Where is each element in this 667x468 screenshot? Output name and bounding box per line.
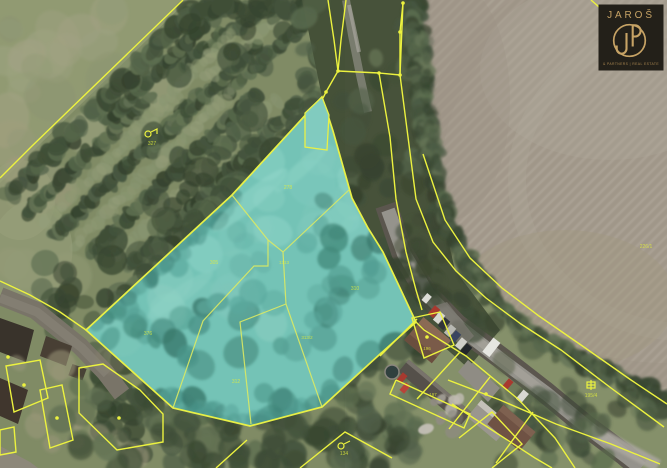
svg-text:& PARTNERS | REAL ESTATE: & PARTNERS | REAL ESTATE (603, 62, 659, 66)
svg-text:196: 196 (423, 346, 431, 351)
svg-text:278: 278 (284, 185, 293, 191)
svg-text:312: 312 (232, 379, 241, 385)
svg-text:313/2: 313/2 (301, 335, 313, 340)
svg-text:305: 305 (210, 260, 219, 266)
svg-text:310: 310 (351, 286, 360, 292)
svg-text:1313: 1313 (279, 260, 290, 265)
svg-text:134: 134 (340, 451, 349, 457)
svg-text:376: 376 (144, 331, 153, 337)
svg-text:195/4: 195/4 (585, 393, 598, 399)
svg-text:197: 197 (429, 392, 437, 397)
svg-text:327: 327 (148, 141, 157, 147)
svg-text:226/1: 226/1 (640, 244, 653, 250)
svg-text:JAROŠ: JAROŠ (607, 8, 655, 21)
